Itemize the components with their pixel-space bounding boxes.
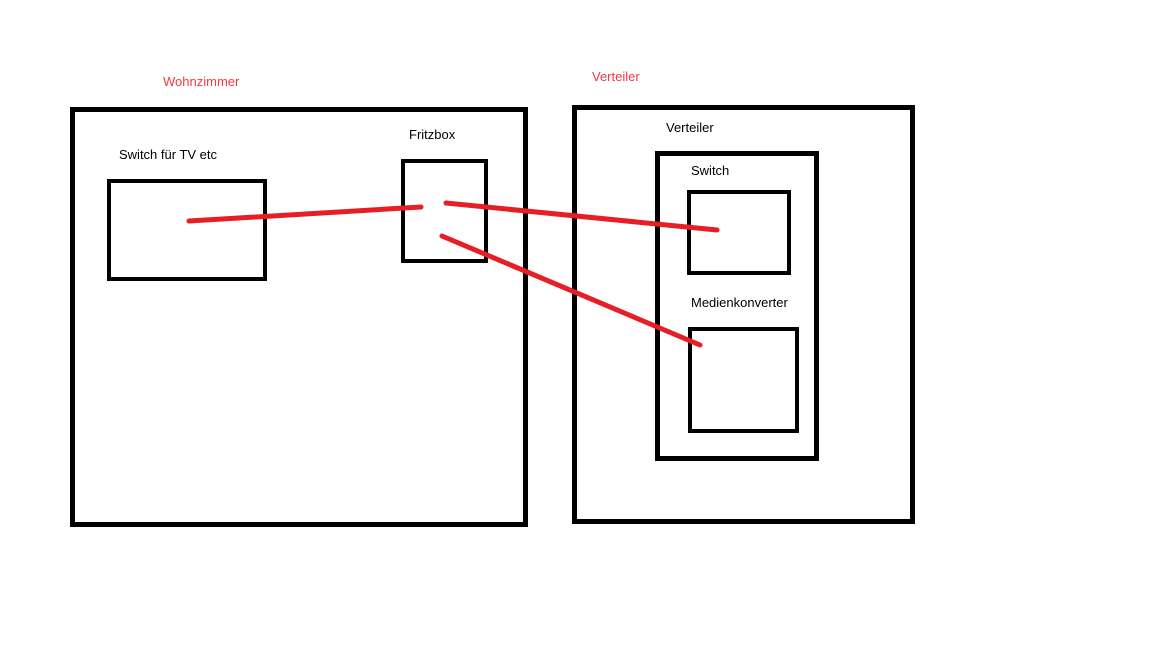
- wohnzimmer-room-title: Wohnzimmer: [163, 74, 239, 89]
- fritzbox-box: [401, 159, 488, 263]
- medienkonverter-label: Medienkonverter: [691, 295, 788, 310]
- verteiler-inner-label: Verteiler: [666, 120, 714, 135]
- verteiler-room-title: Verteiler: [592, 69, 640, 84]
- verteiler-switch-box: [687, 190, 791, 275]
- switch-tv-label: Switch für TV etc: [119, 147, 217, 162]
- verteiler-switch-label: Switch: [691, 163, 729, 178]
- switch-tv-box: [107, 179, 267, 281]
- medienkonverter-box: [688, 327, 799, 433]
- network-diagram: Wohnzimmer Switch für TV etc Fritzbox Ve…: [0, 0, 1152, 648]
- fritzbox-label: Fritzbox: [409, 127, 455, 142]
